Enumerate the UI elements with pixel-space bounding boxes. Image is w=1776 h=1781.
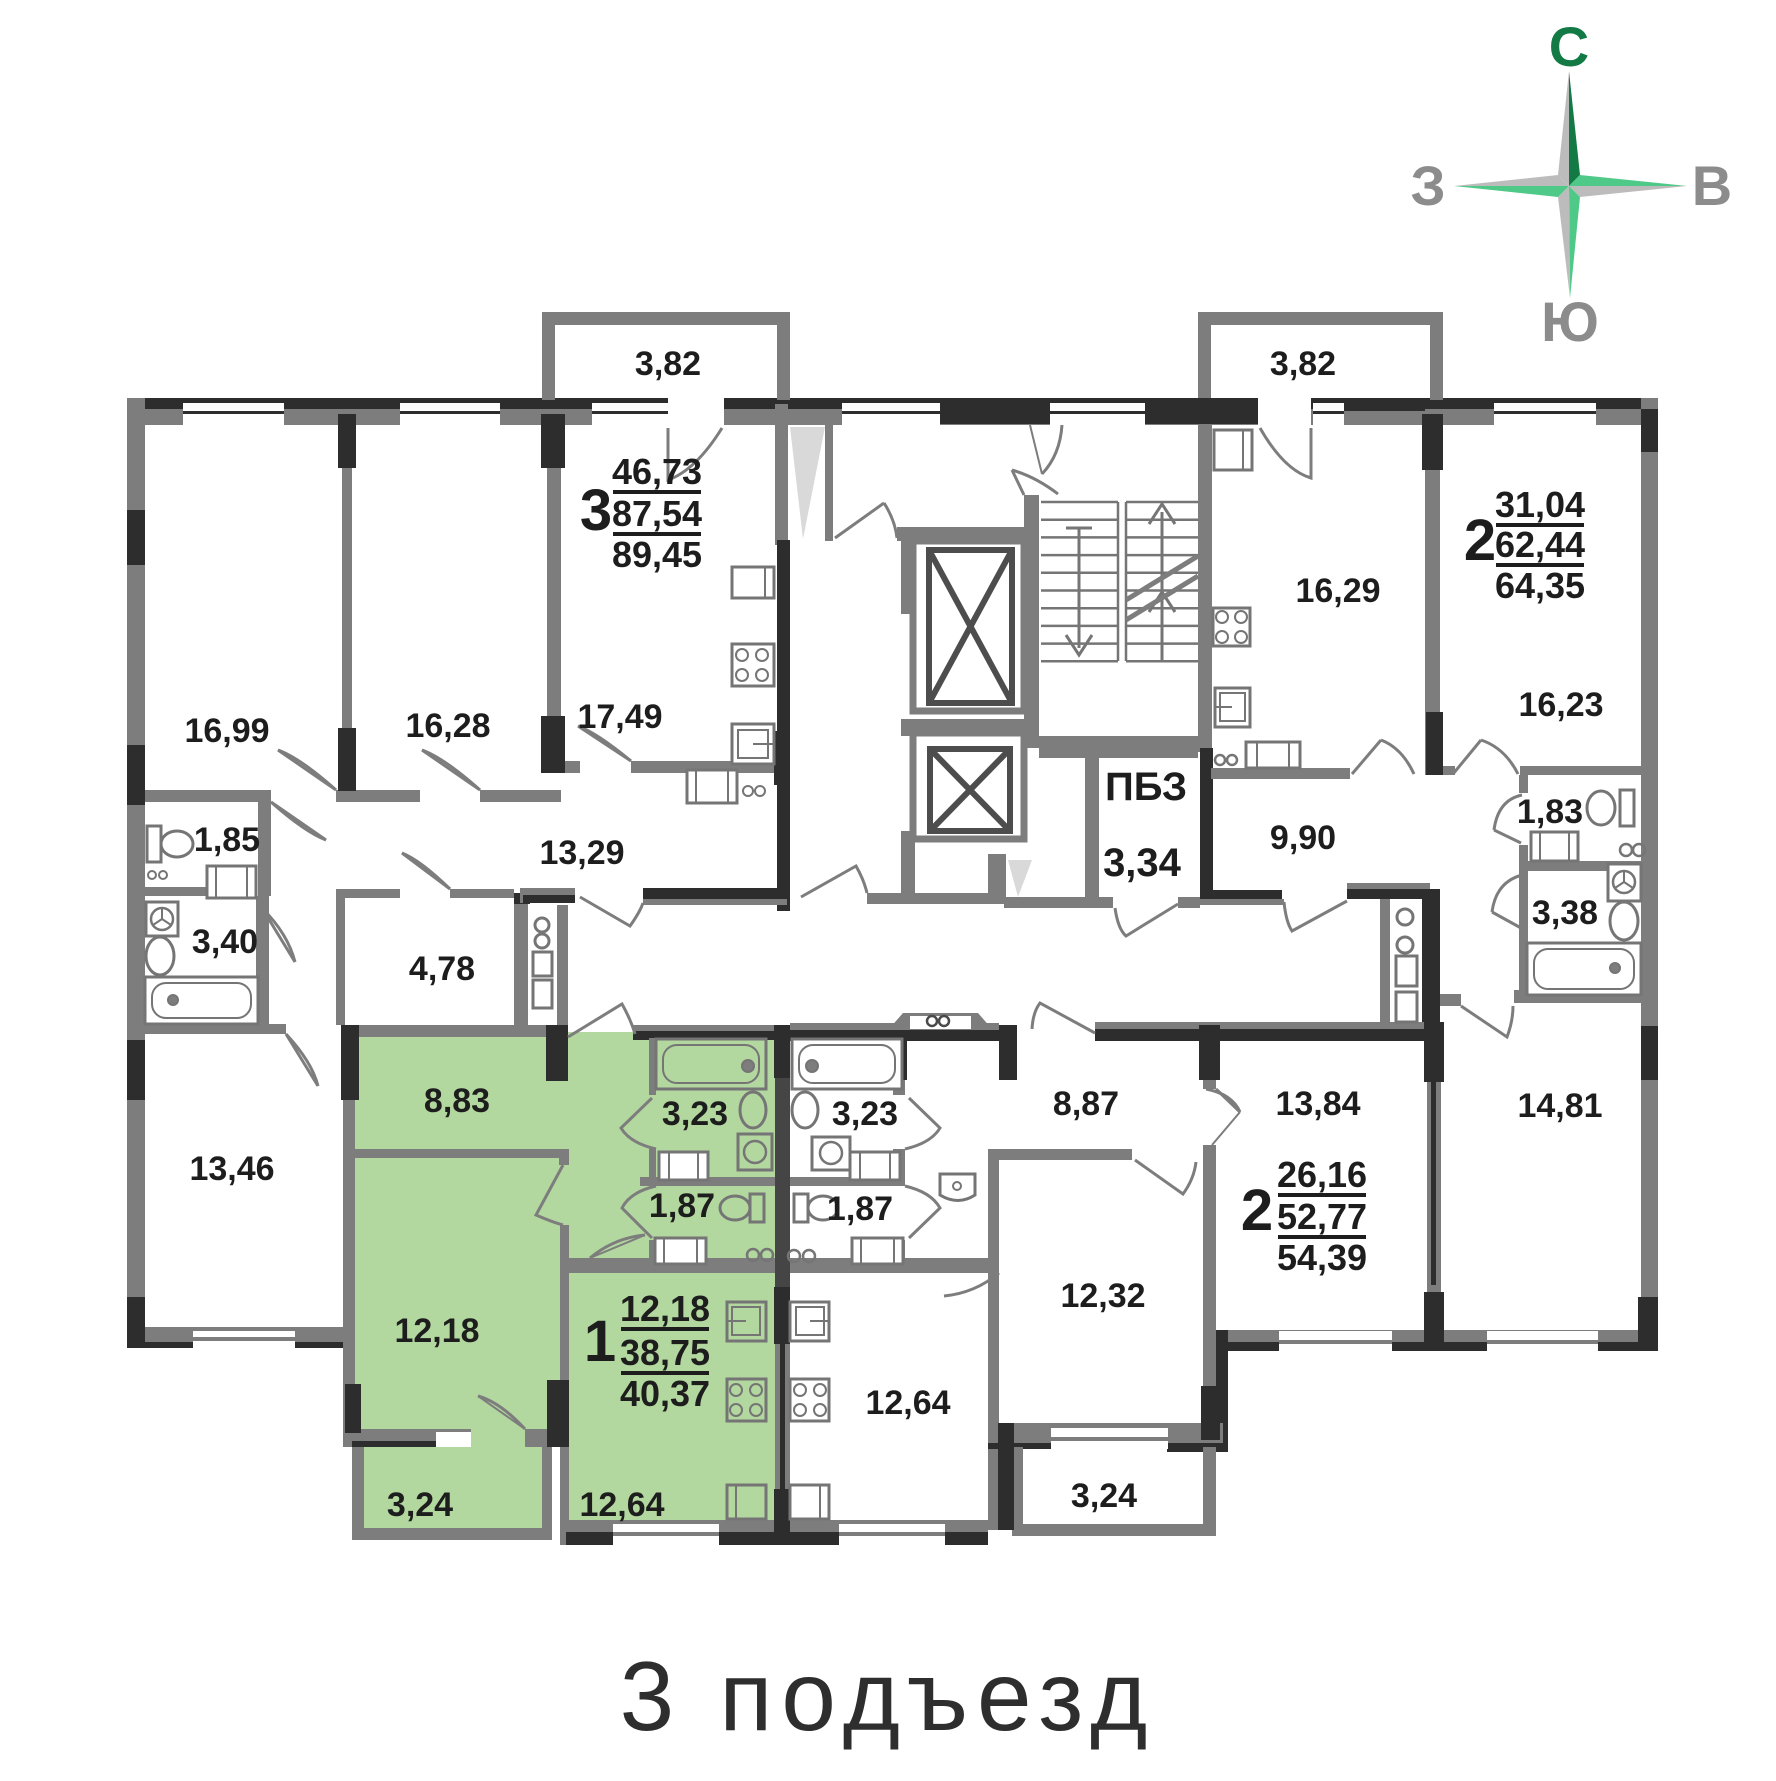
svg-text:3 подъезд: 3 подъезд bbox=[620, 1641, 1157, 1751]
svg-text:89,45: 89,45 bbox=[612, 534, 702, 575]
svg-text:46,73: 46,73 bbox=[612, 451, 702, 492]
svg-text:52,77: 52,77 bbox=[1277, 1196, 1367, 1237]
svg-text:16,29: 16,29 bbox=[1295, 572, 1380, 610]
svg-text:14,81: 14,81 bbox=[1517, 1087, 1602, 1125]
svg-text:1,83: 1,83 bbox=[1517, 793, 1583, 831]
svg-text:9,90: 9,90 bbox=[1270, 819, 1336, 857]
svg-text:1: 1 bbox=[584, 1309, 616, 1374]
svg-text:3,23: 3,23 bbox=[662, 1095, 728, 1133]
svg-text:12,18: 12,18 bbox=[394, 1312, 479, 1350]
svg-text:3,82: 3,82 bbox=[1270, 345, 1336, 383]
svg-text:4,78: 4,78 bbox=[409, 950, 475, 988]
svg-text:З: З bbox=[1410, 154, 1445, 217]
svg-text:8,83: 8,83 bbox=[424, 1082, 490, 1120]
svg-text:12,32: 12,32 bbox=[1060, 1277, 1145, 1315]
svg-text:16,28: 16,28 bbox=[405, 707, 490, 745]
svg-text:8,87: 8,87 bbox=[1053, 1085, 1119, 1123]
svg-text:64,35: 64,35 bbox=[1495, 565, 1585, 606]
svg-text:Ю: Ю bbox=[1541, 290, 1599, 353]
svg-text:40,37: 40,37 bbox=[620, 1373, 710, 1414]
svg-text:ПБЗ: ПБЗ bbox=[1105, 765, 1187, 809]
svg-text:3,38: 3,38 bbox=[1532, 894, 1598, 932]
svg-text:13,29: 13,29 bbox=[539, 834, 624, 872]
svg-text:16,23: 16,23 bbox=[1518, 686, 1603, 724]
svg-text:26,16: 26,16 bbox=[1277, 1154, 1367, 1195]
svg-text:12,64: 12,64 bbox=[865, 1384, 950, 1422]
svg-text:12,18: 12,18 bbox=[620, 1288, 710, 1329]
svg-text:87,54: 87,54 bbox=[612, 493, 702, 534]
svg-text:1,87: 1,87 bbox=[827, 1190, 893, 1228]
svg-text:3,40: 3,40 bbox=[192, 923, 258, 961]
svg-text:12,64: 12,64 bbox=[579, 1486, 664, 1524]
svg-text:17,49: 17,49 bbox=[577, 698, 662, 736]
svg-text:В: В bbox=[1692, 154, 1732, 217]
svg-text:13,46: 13,46 bbox=[189, 1150, 274, 1188]
svg-text:2: 2 bbox=[1241, 1178, 1273, 1243]
svg-text:3,34: 3,34 bbox=[1103, 841, 1182, 885]
svg-text:2: 2 bbox=[1464, 508, 1496, 573]
svg-text:62,44: 62,44 bbox=[1495, 524, 1585, 565]
svg-text:16,99: 16,99 bbox=[184, 712, 269, 750]
svg-text:1,87: 1,87 bbox=[649, 1187, 715, 1225]
svg-text:3,23: 3,23 bbox=[832, 1095, 898, 1133]
svg-text:31,04: 31,04 bbox=[1495, 484, 1585, 525]
svg-text:3,24: 3,24 bbox=[1071, 1477, 1137, 1515]
svg-text:С: С bbox=[1549, 15, 1589, 78]
svg-text:1,85: 1,85 bbox=[194, 821, 260, 859]
svg-text:38,75: 38,75 bbox=[620, 1332, 710, 1373]
svg-text:13,84: 13,84 bbox=[1275, 1085, 1360, 1123]
svg-text:3,24: 3,24 bbox=[387, 1486, 453, 1524]
svg-text:3,82: 3,82 bbox=[635, 345, 701, 383]
svg-text:3: 3 bbox=[580, 478, 612, 543]
svg-text:54,39: 54,39 bbox=[1277, 1237, 1367, 1278]
